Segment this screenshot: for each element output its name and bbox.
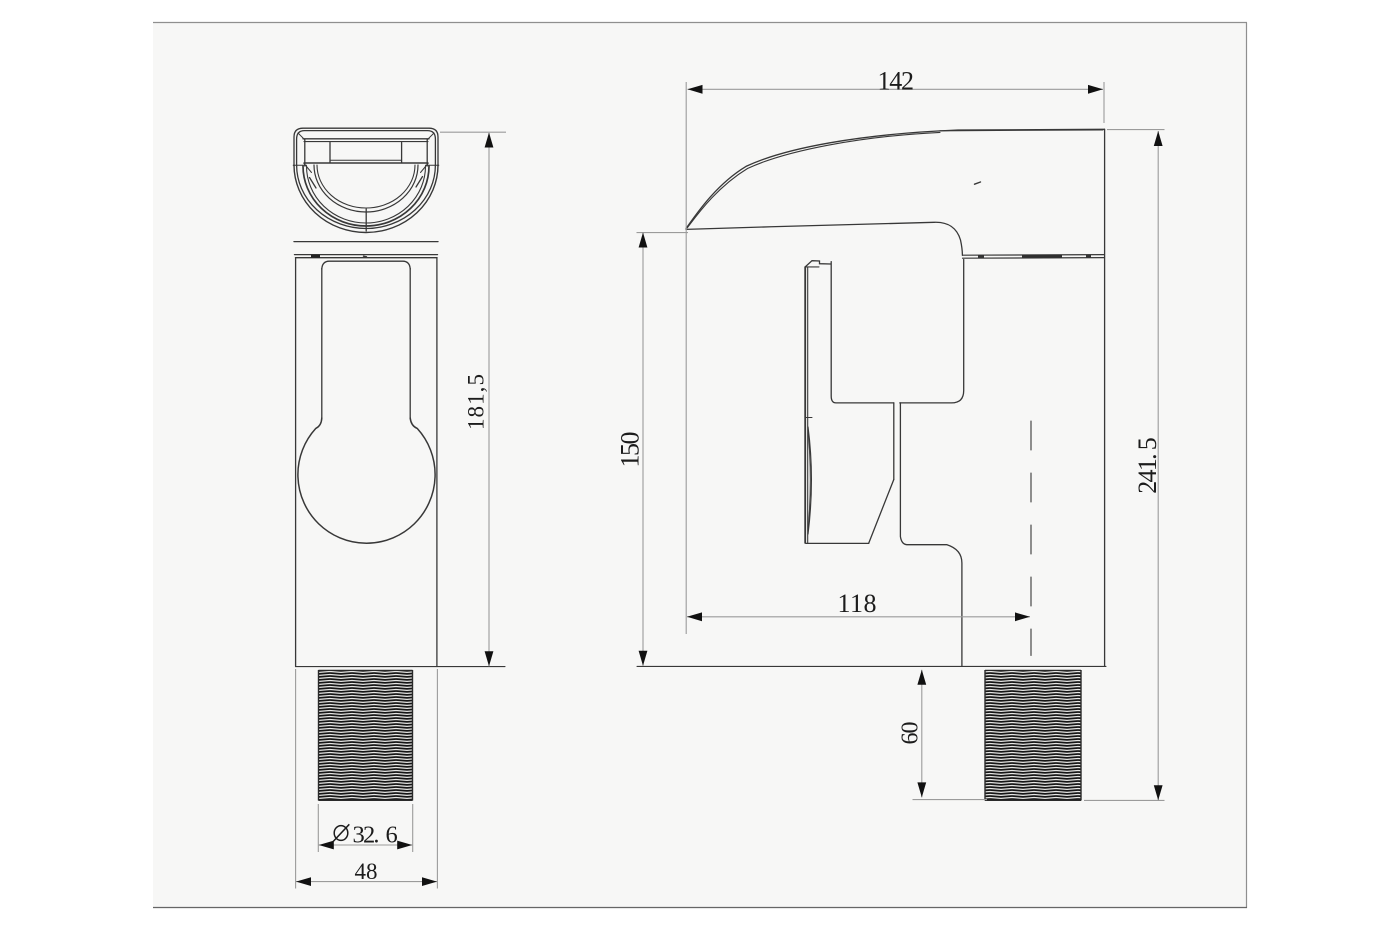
svg-text:181,5: 181,5	[464, 374, 489, 430]
svg-text:142: 142	[877, 66, 914, 95]
svg-text:6: 6	[386, 822, 398, 849]
svg-text:32.: 32.	[353, 822, 380, 849]
svg-text:118: 118	[838, 589, 877, 618]
svg-text:241. 5: 241. 5	[1133, 437, 1162, 494]
svg-text:60: 60	[898, 722, 924, 745]
svg-text:150: 150	[616, 432, 645, 468]
svg-text:48: 48	[355, 859, 378, 884]
